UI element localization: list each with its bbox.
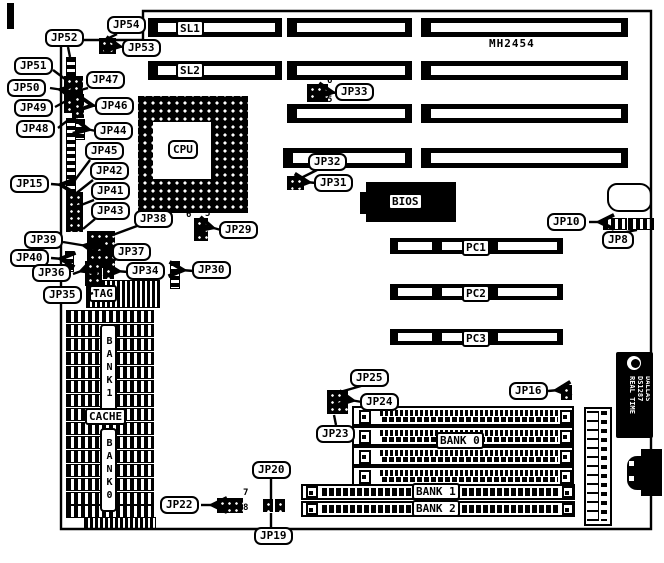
callout-jp8: JP8 [602,231,634,249]
callout-jp15: JP15 [10,175,49,193]
callout-jp38: JP38 [134,210,173,228]
callout-jp10: JP10 [547,213,586,231]
callout-jp48: JP48 [16,120,55,138]
callout-jp54: JP54 [107,16,146,34]
callout-jp44: JP44 [94,122,133,140]
callout-jp29: JP29 [219,221,258,239]
jp29-pin6: 6 [186,211,191,220]
callout-jp36: JP36 [32,264,71,282]
callout-jp45: JP45 [85,142,124,160]
callout-jp43: JP43 [91,202,130,220]
callout-jp30: JP30 [192,261,231,279]
callout-jp19: JP19 [254,527,293,545]
callout-jp49: JP49 [14,99,53,117]
callout-jp35: JP35 [43,286,82,304]
callout-jp50: JP50 [7,79,46,97]
callout-jp53: JP53 [122,39,161,57]
jp22-pin7: 7 [243,489,248,498]
callout-jp20: JP20 [252,461,291,479]
jp29-pin5: 5 [205,210,210,219]
jp33-pin5: 5 [327,96,332,105]
callout-jp47: JP47 [86,71,125,89]
callout-jp34: JP34 [126,262,165,280]
callout-jp25: JP25 [350,369,389,387]
jp22-pin8: 8 [243,504,248,513]
callout-jp22: JP22 [160,496,199,514]
callout-jp24: JP24 [360,393,399,411]
callout-jp33: JP33 [335,83,374,101]
callout-jp42: JP42 [90,162,129,180]
callout-jp23: JP23 [316,425,355,443]
callout-jp52: JP52 [45,29,84,47]
callout-jp16: JP16 [509,382,548,400]
callout-jp31: JP31 [314,174,353,192]
callout-jp32: JP32 [308,153,347,171]
jp33-pin6: 6 [327,77,332,86]
callout-jp39: JP39 [24,231,63,249]
callout-jp46: JP46 [95,97,134,115]
callout-jp51: JP51 [14,57,53,75]
callout-jp41: JP41 [91,182,130,200]
callout-jp37: JP37 [112,243,151,261]
motherboard-layout-diagram: SL1 SL2 MH2454 PC1 PC2 PC3 CPU BIOS DALL… [0,0,664,563]
